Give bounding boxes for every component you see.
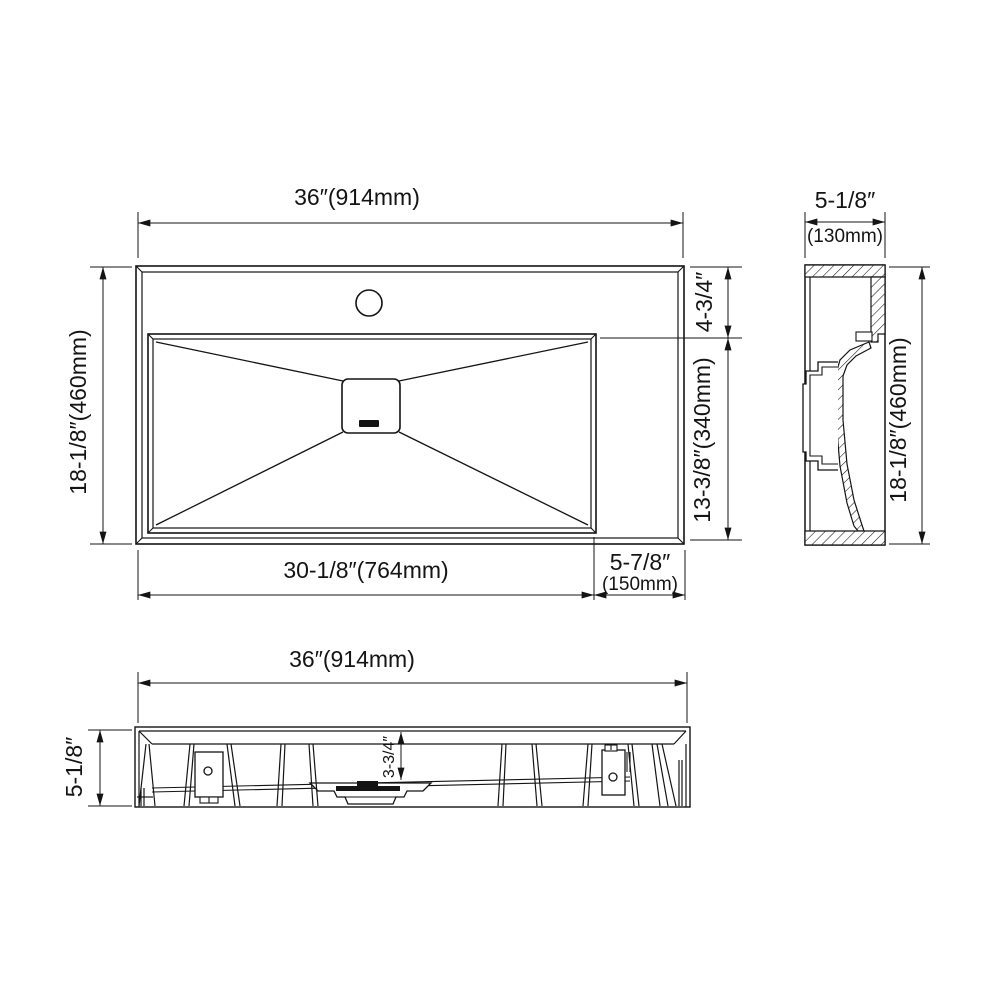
side-deck-notch: [856, 332, 872, 341]
sink-technical-drawing: 36″(914mm) 18-1/8″(460mm) 4-3/4″ 13-3/8″…: [0, 0, 1000, 1000]
front-left-bracket: [195, 752, 223, 803]
dim-side-height-label: 18-1/8″(460mm): [885, 337, 911, 502]
left-bracket-hole: [204, 767, 212, 775]
side-top-deck-section: [805, 265, 885, 277]
dim-side-width-mm-label: (130mm): [807, 226, 883, 247]
dim-basin-width-label: 30-1/8″(764mm): [283, 557, 448, 583]
dim-deck-depth-label: 4-3/4″: [691, 272, 717, 333]
dim-drain-drop: 3-3/4″: [381, 732, 401, 780]
dim-basin-depth-label: 13-3/8″(340mm): [689, 357, 715, 522]
dim-front-height-label: 5-1/8″: [61, 737, 87, 798]
drain-flange: [336, 786, 400, 791]
drain-nub: [357, 781, 378, 786]
right-bracket-hole: [609, 773, 617, 781]
dim-front-width-label: 36″(914mm): [289, 646, 415, 672]
overflow-slot: [359, 420, 379, 427]
dim-side-width-label: 5-1/8″: [815, 187, 876, 213]
dim-drain-drop-label: 3-3/4″: [381, 736, 398, 778]
side-drain-boss-outer: [803, 362, 838, 470]
dim-right-deck-width-label: 5-7/8″: [610, 549, 671, 575]
side-rear-deck-section: [871, 277, 885, 342]
side-bottom-section: [805, 531, 885, 545]
dim-right-deck-width-mm-label: (150mm): [602, 574, 678, 595]
dim-plan-width-label: 36″(914mm): [294, 184, 420, 210]
dim-plan-height-label: 18-1/8″(460mm): [65, 329, 91, 494]
